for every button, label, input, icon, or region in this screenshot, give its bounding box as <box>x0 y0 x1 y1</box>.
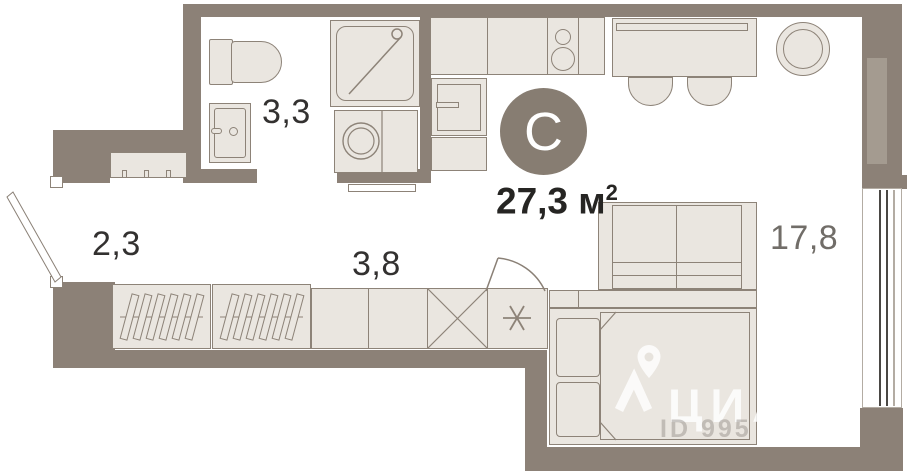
total-area-unit: м <box>578 180 605 221</box>
washing-machine <box>334 110 418 173</box>
sofa-seat-1 <box>612 262 677 276</box>
window <box>862 188 902 408</box>
total-area-unit-sup: 2 <box>606 180 618 205</box>
crossed-cabinet <box>427 288 488 349</box>
wall-right-duct <box>867 58 887 164</box>
wall-right-jut <box>862 175 907 189</box>
round-table-inner <box>783 29 823 69</box>
burner-large <box>551 47 575 71</box>
bathroom-door-leaf <box>348 184 416 192</box>
room-label-living-room: 17,8 <box>770 219 838 258</box>
kitchen-counter-1 <box>430 17 488 75</box>
room-label-bathroom: 3,3 <box>262 93 311 132</box>
chair-1 <box>628 77 673 106</box>
fridge-handle <box>436 102 459 108</box>
wall-under-bathroom-left <box>201 169 257 183</box>
hall-cabinet-1 <box>311 288 369 349</box>
sofa-seat-2 <box>676 262 742 276</box>
wall-hallway-bottom <box>53 350 547 368</box>
total-area-value: 27,3 <box>496 180 568 221</box>
balcony-door-hinge-bottom <box>50 276 63 288</box>
shower-tray <box>336 26 414 101</box>
sofa-seat-3 <box>612 275 677 289</box>
sink-handle <box>211 128 222 134</box>
floorplan: С 27,3 м2 3,3 2,3 3,8 17,8 ЦИАН ID 995 <box>0 0 910 471</box>
room-label-loggia: 2,3 <box>92 225 141 264</box>
radiator-foot-1 <box>122 170 127 178</box>
chair-2 <box>687 77 732 106</box>
radiator-foot-2 <box>144 170 149 178</box>
entrance-door-arc <box>498 258 545 291</box>
hall-cabinet-2 <box>368 288 428 349</box>
sofa-back-right <box>676 205 742 263</box>
pillow-1 <box>556 318 600 377</box>
asterisk-cabinet <box>487 288 548 349</box>
radiator-foot-3 <box>166 170 171 178</box>
wardrobe-1 <box>112 284 211 349</box>
sofa-back-left <box>612 205 677 263</box>
pillow-2 <box>556 382 600 437</box>
burner-small <box>555 29 571 45</box>
console-shelf <box>549 290 757 308</box>
wardrobe-2 <box>212 284 311 349</box>
wall-vertical-connector <box>525 352 547 471</box>
toilet-tank <box>209 39 233 85</box>
kitchen-counter-3 <box>578 17 605 75</box>
dining-table-edge <box>616 23 748 31</box>
sink-faucet <box>229 127 238 136</box>
wall-top <box>183 4 902 17</box>
wall-corner-bottom-right <box>860 408 903 471</box>
kitchen-counter-4 <box>431 137 487 171</box>
balcony-door-hinge-top <box>50 176 63 188</box>
total-area-label: 27,3 м2 <box>496 180 618 222</box>
console-divider <box>578 291 579 307</box>
sofa-seat-4 <box>676 275 742 289</box>
apartment-type-letter: С <box>524 101 563 163</box>
entrance-door-leaf <box>486 258 498 291</box>
wall-loggia-left-block <box>53 282 115 366</box>
room-label-hallway: 3,8 <box>352 245 401 284</box>
wall-bottom-main <box>525 447 862 471</box>
balcony-door-leaf <box>7 192 61 282</box>
kitchen-counter-2 <box>487 17 548 75</box>
toilet-bowl <box>231 41 282 83</box>
apartment-type-badge: С <box>500 88 587 175</box>
watermark-listing-id: ID 995 <box>660 415 752 444</box>
